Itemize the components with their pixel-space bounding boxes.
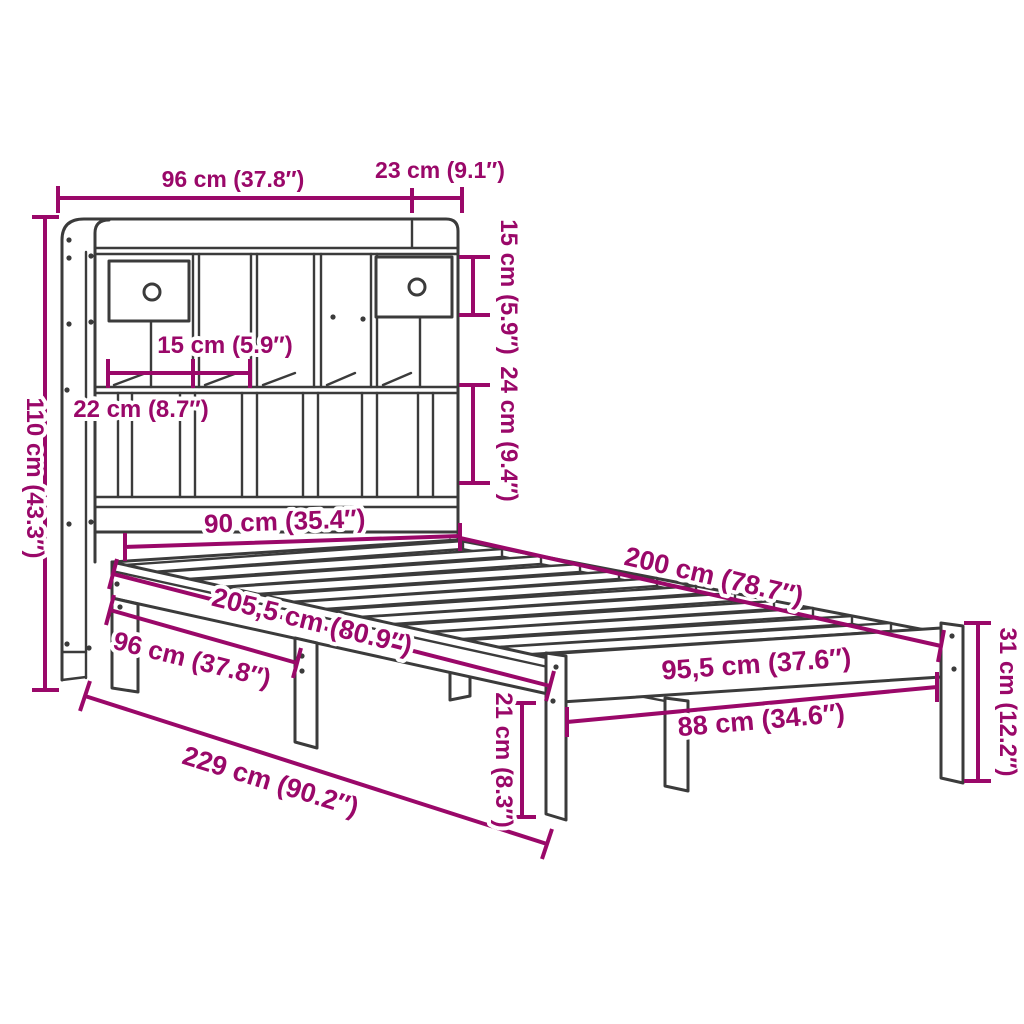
dim-line-foot-height bbox=[964, 623, 991, 781]
side-panel-screw-dots bbox=[64, 237, 93, 650]
dim-line-lower-shelf-height bbox=[459, 385, 490, 483]
label-headboard-depth: 23 cm (9.1″) bbox=[375, 157, 505, 183]
headboard-face-left-edge bbox=[95, 220, 109, 562]
right-drawer bbox=[376, 257, 452, 317]
cubby-screw-dot bbox=[330, 314, 335, 319]
bed-dimension-diagram: 96 cm (37.8″) 23 cm (9.1″) 15 cm (5.9″) … bbox=[0, 0, 1024, 1024]
dim-line-headboard-depth bbox=[412, 187, 462, 213]
cubby-screw-dot bbox=[360, 316, 365, 321]
top-shelf-lines bbox=[95, 221, 458, 254]
label-headboard-width: 96 cm (37.8″) bbox=[162, 166, 305, 192]
label-footprint: 229 cm (90.2″) bbox=[179, 740, 362, 822]
middle-shelf-lines bbox=[95, 387, 458, 393]
left-drawer bbox=[109, 261, 189, 321]
label-cubby-width-small: 15 cm (5.9″) bbox=[157, 332, 293, 359]
foot-near-leg bbox=[546, 653, 566, 820]
dim-line-cubby-widths bbox=[108, 359, 250, 388]
label-foot-inner-width: 88 cm (34.6″) bbox=[676, 698, 846, 742]
label-top-shelf-height: 15 cm (5.9″) bbox=[495, 219, 522, 355]
headboard-left-panel-bottom bbox=[62, 652, 86, 680]
label-bed-inner-width: 90 cm (35.4″) bbox=[204, 503, 366, 539]
label-cubby-width-large: 22 cm (8.7″) bbox=[73, 396, 209, 423]
label-headboard-height: 110 cm (43.3″) bbox=[21, 398, 48, 559]
cubby-dividers bbox=[193, 254, 377, 387]
label-lower-shelf-height: 24 cm (9.4″) bbox=[495, 366, 522, 502]
label-foot-height: 31 cm (12.2″) bbox=[994, 628, 1021, 777]
label-clearance: 21 cm (8.3″) bbox=[490, 692, 517, 828]
diagram-canvas: 96 cm (37.8″) 23 cm (9.1″) 15 cm (5.9″) … bbox=[0, 0, 1024, 1024]
dim-line-top-shelf-height bbox=[459, 257, 490, 315]
foot-far-leg bbox=[941, 623, 963, 783]
